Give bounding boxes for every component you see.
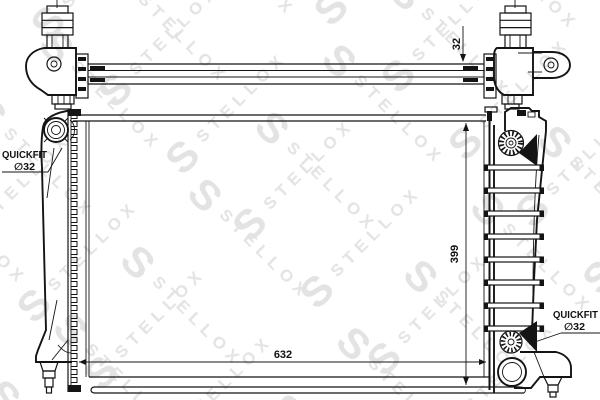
quickfit-left-title: QUICKFIT [2, 150, 47, 161]
quickfit-left-size: ∅32 [14, 162, 35, 173]
dim-label-32: 32 [451, 38, 463, 50]
cooling-rib [484, 165, 545, 172]
cooling-rib [484, 257, 545, 264]
dim-label-632: 632 [274, 349, 292, 361]
cooling-rib [484, 234, 545, 241]
watermark-layer-b [0, 0, 600, 400]
diagram-canvas: S STELLOX S STELLOX [0, 0, 600, 400]
cooling-rib [484, 280, 545, 287]
cooling-rib [484, 188, 545, 195]
quickfit-right-title: QUICKFIT [553, 310, 598, 321]
dim-label-399: 399 [449, 245, 461, 263]
cooling-rib [484, 211, 545, 218]
tube-rib-block [90, 66, 105, 70]
quickfit-right-size: ∅32 [564, 322, 585, 333]
tube-rib-block [90, 78, 105, 82]
radiator-technical-drawing: S STELLOX S STELLOX [0, 0, 600, 400]
tube-rib-block [463, 66, 478, 70]
serrated-fin-strip [71, 116, 80, 388]
tube-rib-block [463, 78, 478, 82]
cooling-rib [484, 303, 545, 310]
